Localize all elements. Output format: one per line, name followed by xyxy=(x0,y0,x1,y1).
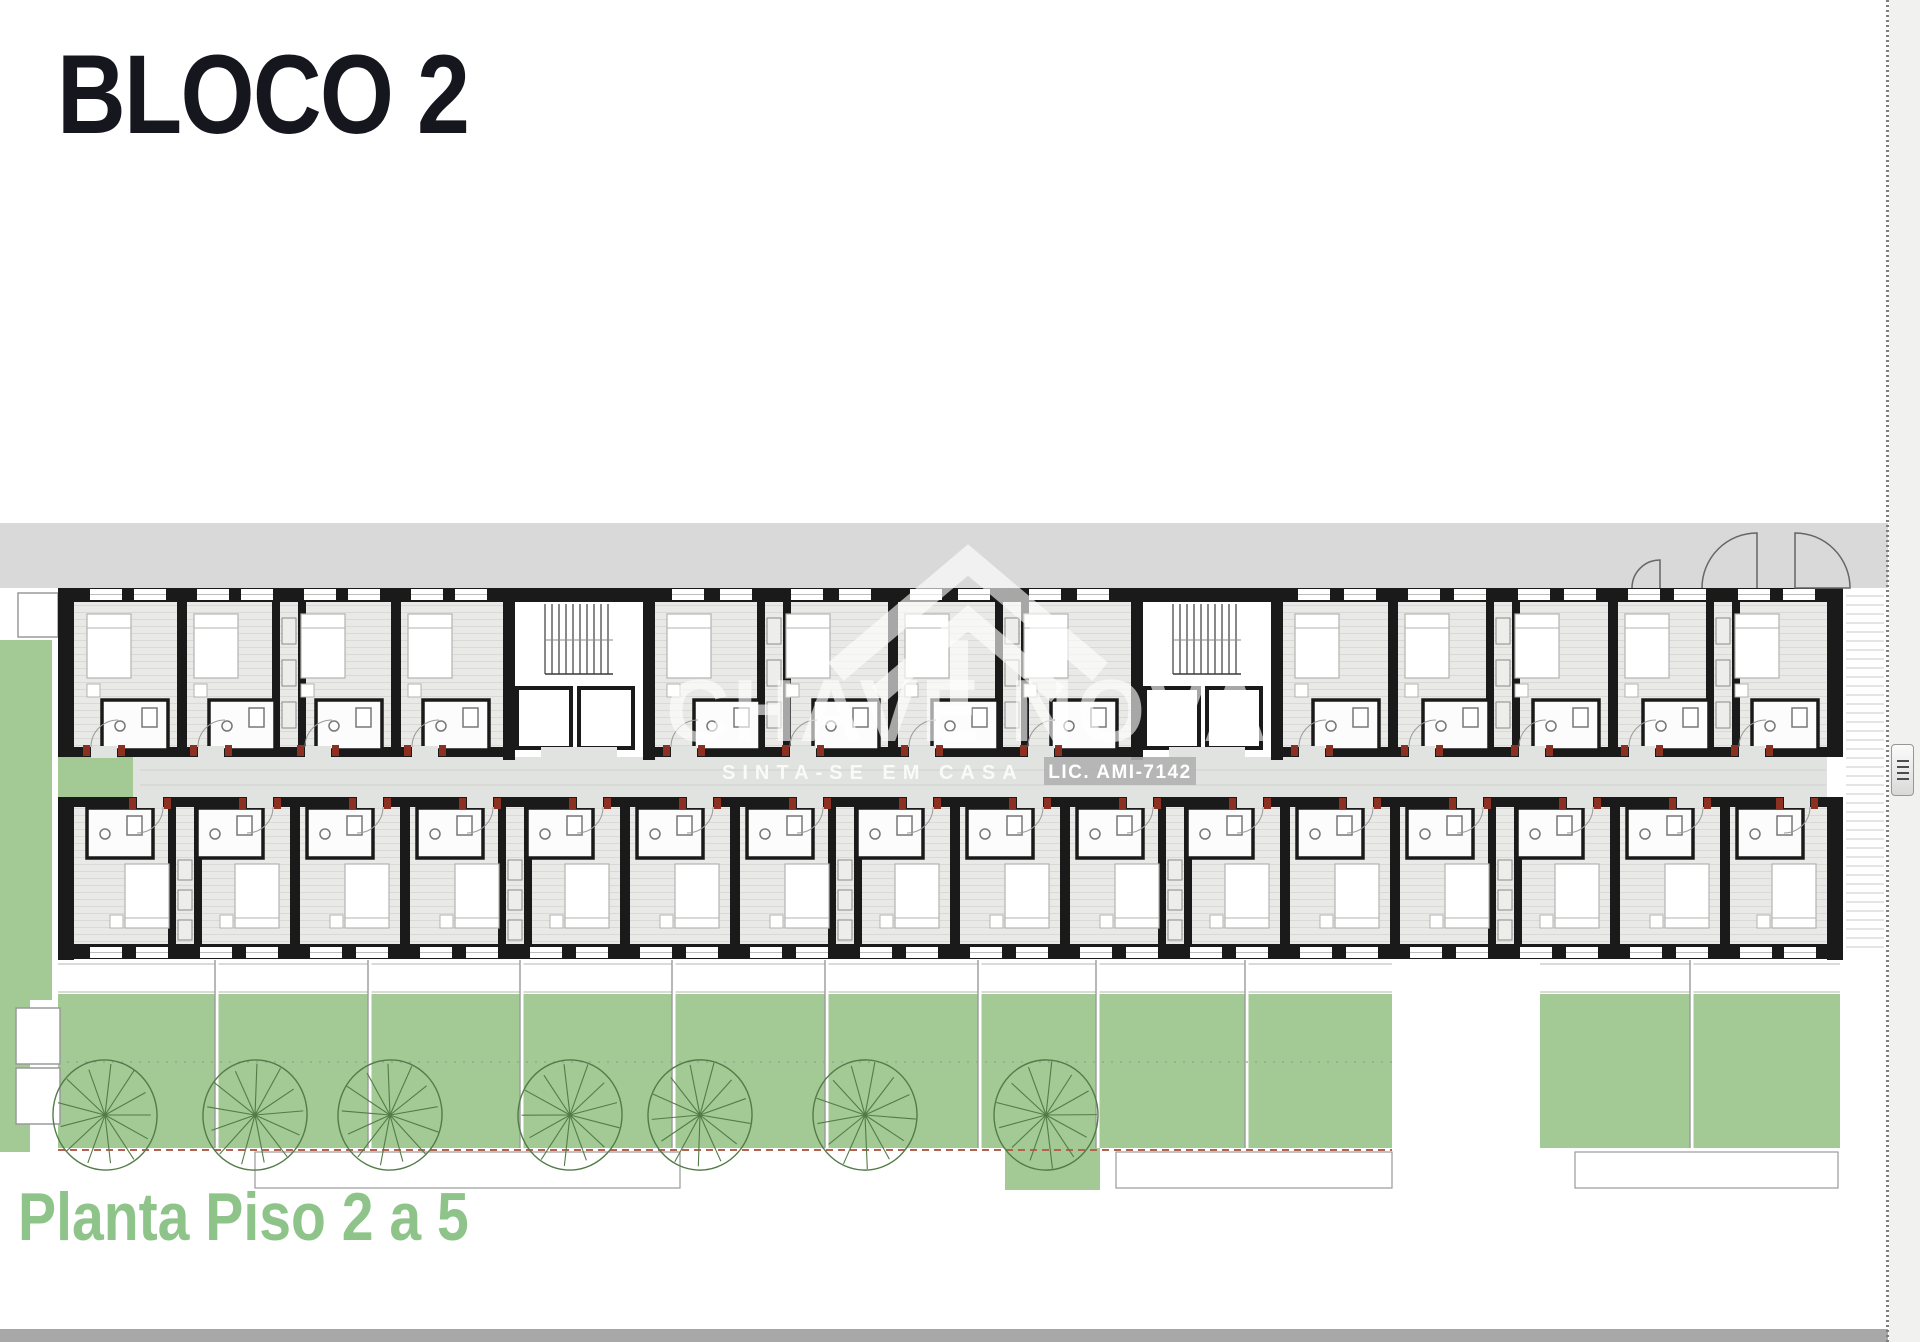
watermark-tagline: SINTA-SE EM CASA xyxy=(722,762,1024,784)
page-edge-dotted-border xyxy=(1886,0,1889,1342)
watermark-license: LIC. AMI-7142 xyxy=(1048,762,1191,783)
resize-handle-grip[interactable] xyxy=(1891,744,1914,796)
plan-caption: Planta Piso 2 a 5 xyxy=(18,1178,469,1256)
bottom-scrollbar-track[interactable] xyxy=(0,1329,1888,1342)
watermark-brand: CHAVE NOVA xyxy=(666,661,1270,760)
floor-plan-drawing: CHAVE NOVA SINTA-SE EM CASA LIC. AMI-714… xyxy=(0,0,1920,1342)
page-right-margin xyxy=(1889,0,1920,1342)
right-side-hatch xyxy=(1846,596,1884,947)
